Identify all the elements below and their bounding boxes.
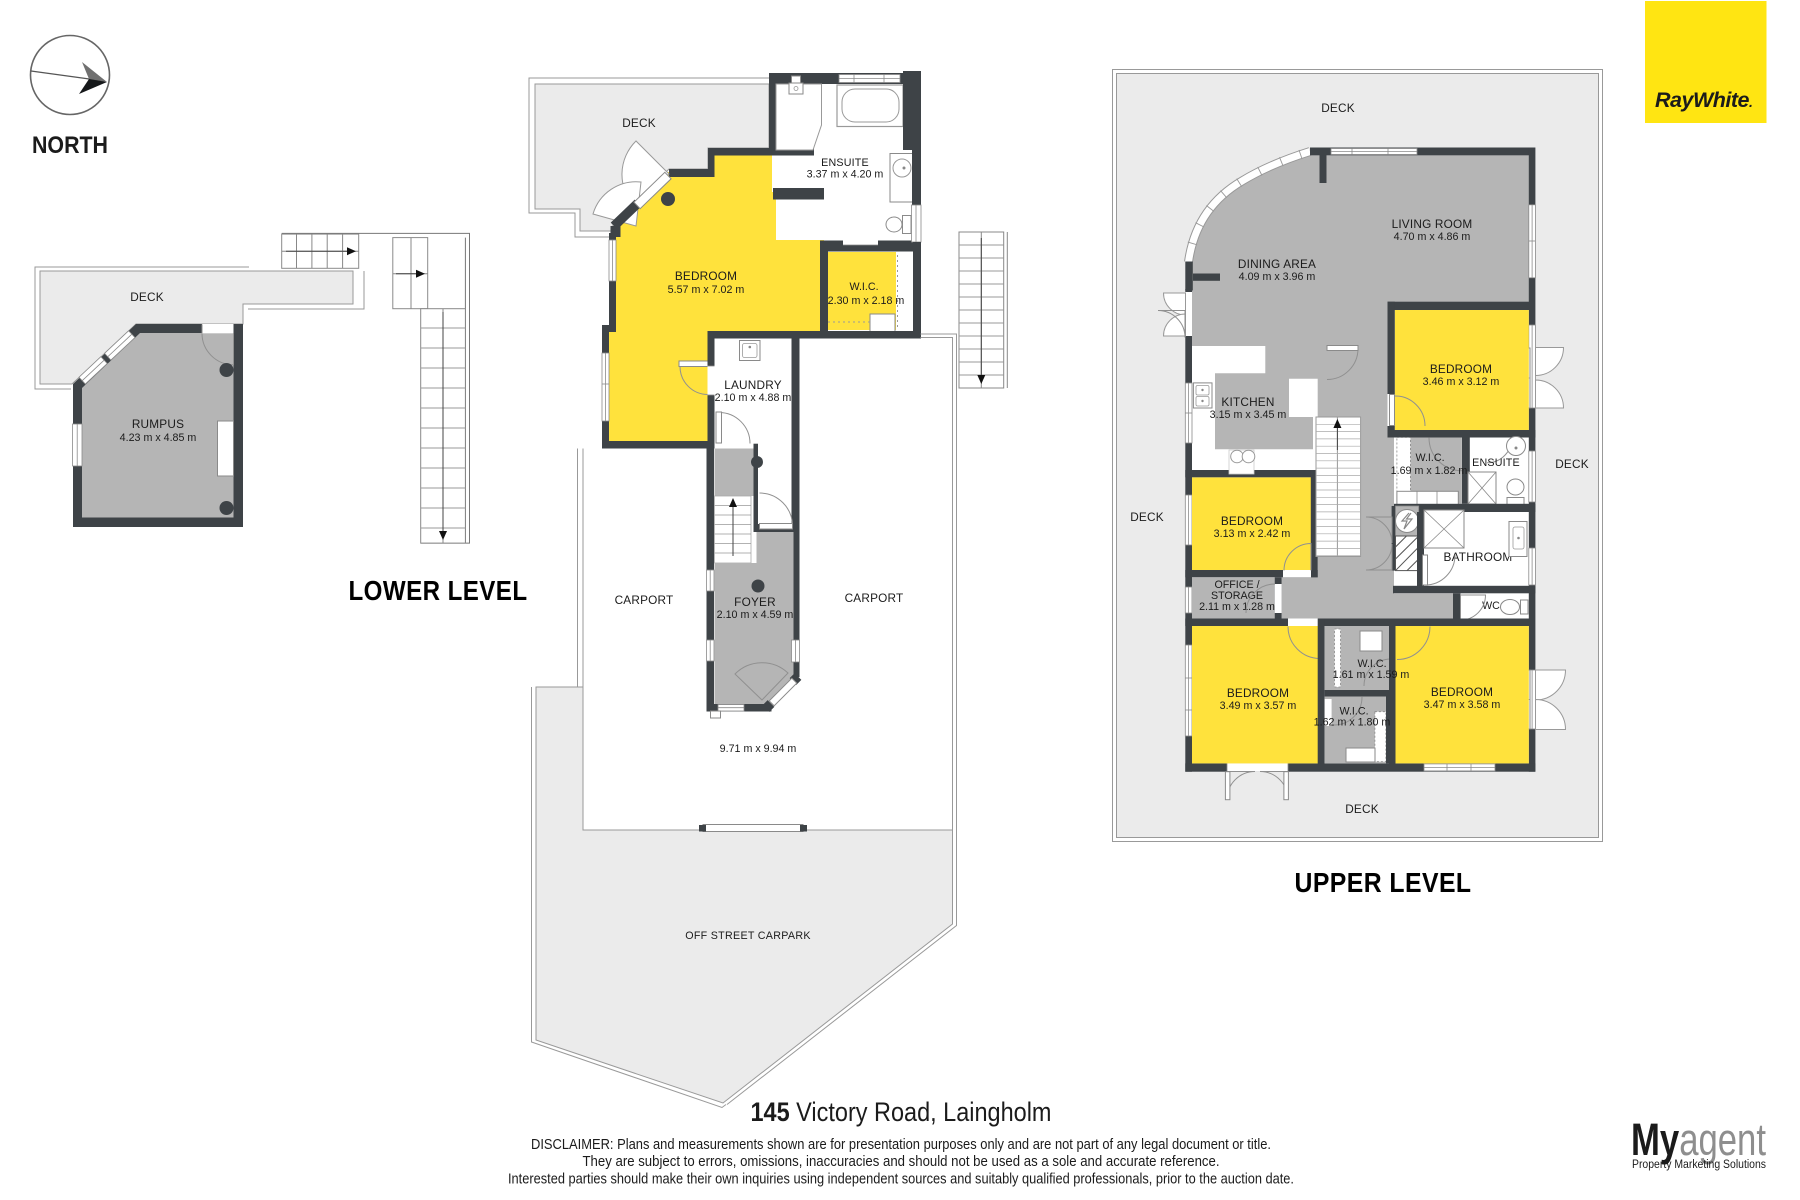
svg-text:OFF STREET CARPARK: OFF STREET CARPARK: [685, 930, 811, 942]
svg-text:2.10 m x 4.88 m: 2.10 m x 4.88 m: [715, 392, 792, 404]
svg-text:BEDROOM: BEDROOM: [1221, 514, 1283, 528]
svg-text:DECK: DECK: [1555, 457, 1589, 471]
svg-text:1.69 m x 1.82 m: 1.69 m x 1.82 m: [1391, 465, 1468, 477]
svg-text:RayWhite.: RayWhite.: [1655, 88, 1752, 112]
svg-text:3.47 m x 3.58 m: 3.47 m x 3.58 m: [1424, 699, 1501, 711]
svg-text:W.I.C.: W.I.C.: [1415, 452, 1444, 464]
svg-text:ENSUITE: ENSUITE: [1472, 457, 1520, 469]
svg-text:CARPORT: CARPORT: [845, 591, 904, 605]
svg-text:1.61 m x 1.59 m: 1.61 m x 1.59 m: [1333, 669, 1410, 681]
svg-text:BEDROOM: BEDROOM: [1431, 685, 1493, 699]
svg-text:145 Victory Road, Laingholm: 145 Victory Road, Laingholm: [751, 1097, 1052, 1127]
svg-text:RUMPUS: RUMPUS: [132, 417, 184, 431]
svg-text:2.11 m x 1.28 m: 2.11 m x 1.28 m: [1199, 601, 1275, 613]
svg-text:3.37 m x 4.20 m: 3.37 m x 4.20 m: [807, 169, 884, 181]
svg-text:LIVING ROOM: LIVING ROOM: [1392, 217, 1473, 231]
svg-text:DECK: DECK: [622, 116, 656, 130]
svg-text:DECK: DECK: [130, 290, 164, 304]
svg-text:Property Marketing Solutions: Property Marketing Solutions: [1632, 1157, 1766, 1171]
svg-text:ENSUITE: ENSUITE: [821, 157, 869, 169]
svg-text:3.46 m x 3.12 m: 3.46 m x 3.12 m: [1423, 376, 1500, 388]
svg-text:They are subject to errors, om: They are subject to errors, omissions, i…: [583, 1154, 1220, 1170]
svg-text:DECK: DECK: [1321, 101, 1355, 115]
svg-text:2.10 m x 4.59 m: 2.10 m x 4.59 m: [717, 609, 794, 621]
svg-text:BEDROOM: BEDROOM: [675, 269, 737, 283]
svg-text:Interested parties should make: Interested parties should make their own…: [508, 1172, 1294, 1188]
svg-text:NORTH: NORTH: [32, 132, 108, 159]
svg-text:DECK: DECK: [1130, 510, 1164, 524]
svg-text:LOWER LEVEL: LOWER LEVEL: [349, 575, 528, 606]
svg-text:BEDROOM: BEDROOM: [1430, 362, 1492, 376]
svg-text:DECK: DECK: [1345, 802, 1379, 816]
svg-text:2.30 m x 2.18 m: 2.30 m x 2.18 m: [828, 295, 905, 307]
svg-text:3.49 m x 3.57 m: 3.49 m x 3.57 m: [1220, 700, 1297, 712]
svg-text:FOYER: FOYER: [734, 595, 776, 609]
svg-text:DISCLAIMER: Plans and measurem: DISCLAIMER: Plans and measurements shown…: [531, 1137, 1271, 1153]
svg-text:4.23 m x 4.85 m: 4.23 m x 4.85 m: [120, 432, 197, 444]
svg-text:CARPORT: CARPORT: [615, 593, 674, 607]
svg-text:UPPER LEVEL: UPPER LEVEL: [1295, 867, 1472, 898]
svg-text:LAUNDRY: LAUNDRY: [724, 378, 782, 392]
svg-text:1.62 m x 1.80 m: 1.62 m x 1.80 m: [1314, 717, 1391, 729]
svg-text:4.70 m x 4.86 m: 4.70 m x 4.86 m: [1394, 231, 1471, 243]
svg-text:3.15 m x 3.45 m: 3.15 m x 3.45 m: [1210, 409, 1287, 421]
svg-text:BEDROOM: BEDROOM: [1227, 686, 1289, 700]
svg-text:4.09 m x 3.96 m: 4.09 m x 3.96 m: [1239, 271, 1316, 283]
svg-text:5.57 m x 7.02 m: 5.57 m x 7.02 m: [668, 284, 745, 296]
svg-text:3.13 m x 2.42 m: 3.13 m x 2.42 m: [1214, 528, 1291, 540]
svg-text:DINING AREA: DINING AREA: [1238, 257, 1316, 271]
svg-text:9.71 m x 9.94 m: 9.71 m x 9.94 m: [720, 743, 797, 755]
svg-text:KITCHEN: KITCHEN: [1221, 395, 1274, 409]
svg-text:W.I.C.: W.I.C.: [849, 281, 878, 293]
